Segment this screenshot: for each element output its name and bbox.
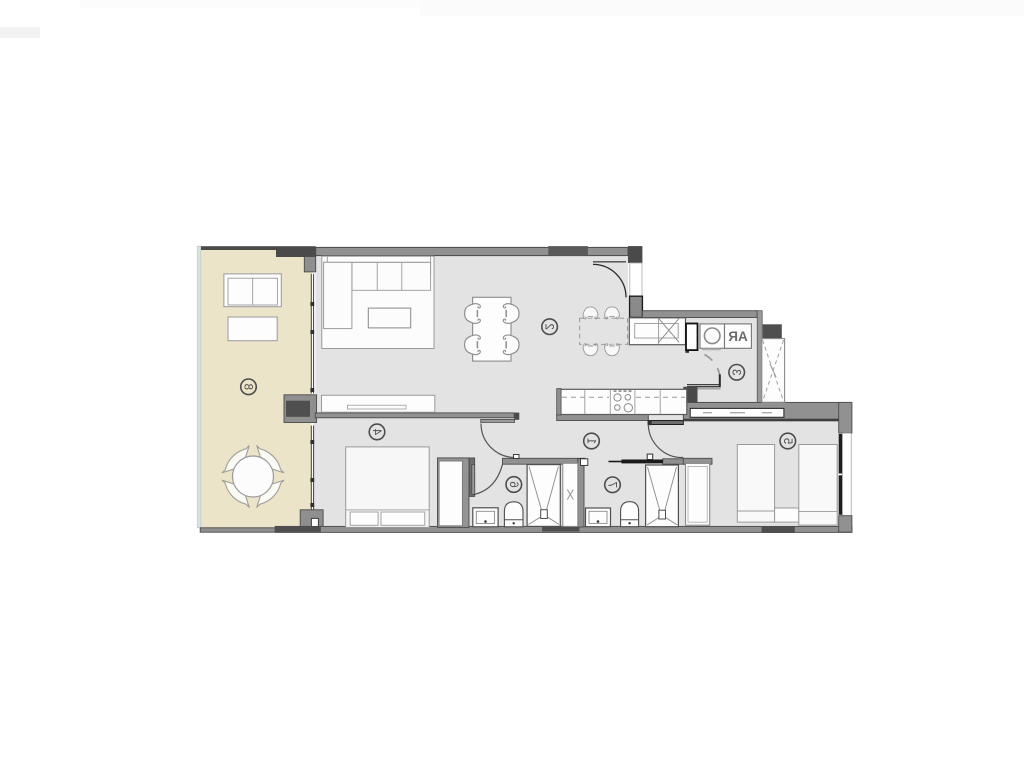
svg-text:4: 4 bbox=[370, 428, 382, 435]
svg-text:1: 1 bbox=[585, 438, 597, 444]
svg-text:7: 7 bbox=[606, 482, 618, 488]
svg-text:2: 2 bbox=[543, 323, 555, 329]
svg-text:3: 3 bbox=[730, 369, 742, 375]
svg-text:5: 5 bbox=[781, 438, 793, 444]
svg-text:AR: AR bbox=[728, 329, 748, 344]
svg-text:8: 8 bbox=[242, 384, 254, 390]
svg-text:6: 6 bbox=[507, 481, 519, 487]
